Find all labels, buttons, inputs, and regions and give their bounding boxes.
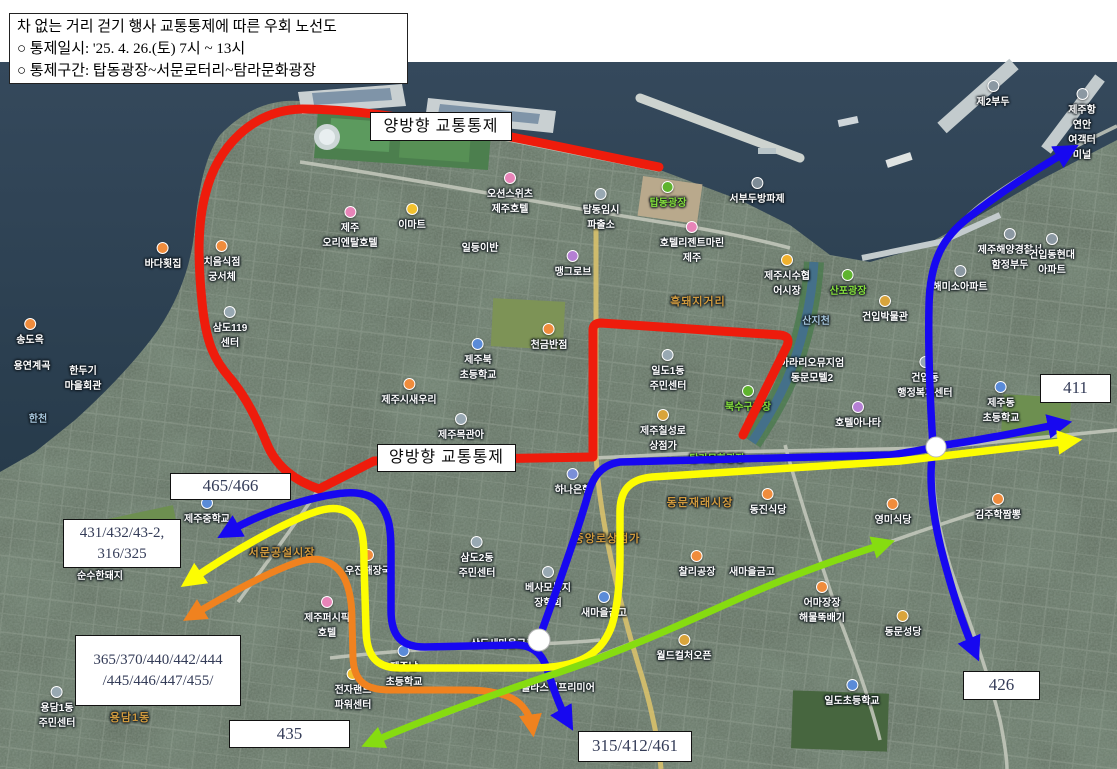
bus-badge-431-432: 431/432/43-2, 316/325 (63, 519, 181, 568)
control-time: ○ 통제일시: '25. 4. 26.(토) 7시 ~ 13시 (17, 38, 245, 60)
route-blue-southeast (931, 449, 974, 650)
route-red-control-section (199, 109, 788, 489)
bus-badge-465-466: 465/466 (170, 473, 291, 500)
notice-box: 차 없는 거리 걷기 행사 교통통제에 따른 우회 노선도 ○ 통제일시: '2… (9, 13, 408, 84)
bus-badge-315-412-461: 315/412/461 (578, 731, 692, 762)
control-label-middle: 양방향 교통통제 (377, 444, 516, 472)
bus-badge-411: 411 (1040, 374, 1111, 403)
bus-badge-426: 426 (963, 671, 1040, 700)
junction-node (528, 629, 550, 651)
control-section: ○ 통제구간: 탑동광장~서문로터리~탐라문화광장 (17, 60, 316, 82)
route-yellow (191, 441, 1070, 668)
notice-title: 차 없는 거리 걷기 행사 교통통제에 따른 우회 노선도 (17, 16, 337, 38)
junction-node (926, 437, 946, 457)
bus-badge-435: 435 (229, 720, 350, 748)
detour-map-image: 이마트오션스위츠 제주호텔탑동임시 파출소탑동광장서부두방파제호텔리젠트마린 제… (0, 0, 1117, 769)
control-label-top: 양방향 교통통제 (370, 112, 512, 141)
route-blue-node-link (540, 448, 932, 636)
bus-badge-365-group: 365/370/440/442/444 /445/446/447/455/ (75, 635, 241, 706)
